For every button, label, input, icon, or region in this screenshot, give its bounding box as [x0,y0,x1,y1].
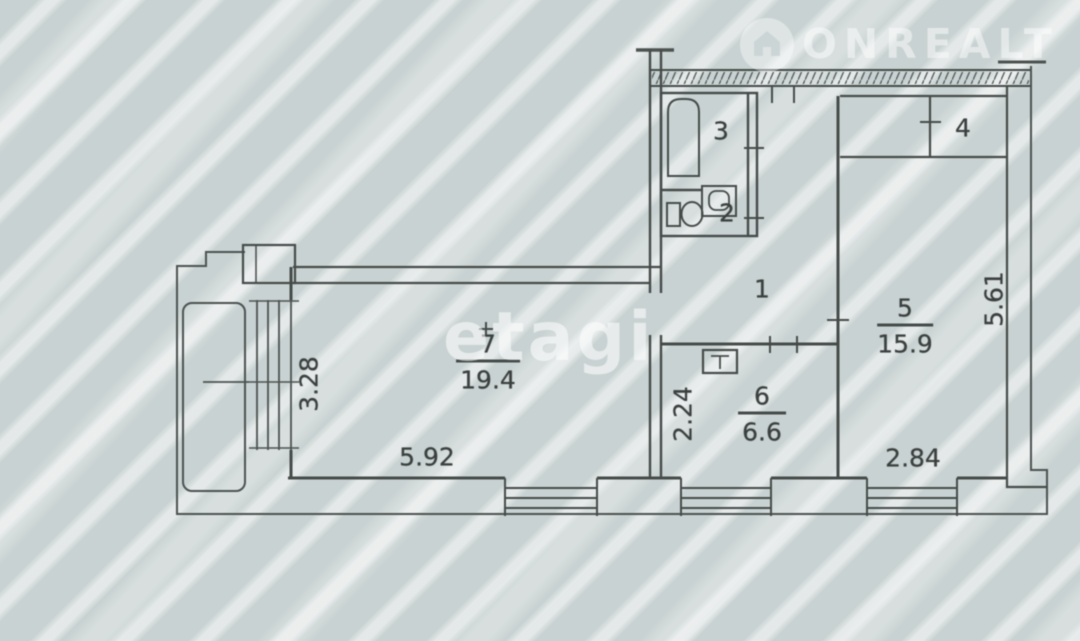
dim-kitchen-width: 2.24 [669,386,698,442]
toilet-icon [667,202,703,226]
room-6-number: 6 [738,382,786,415]
room-5-label: 5 15.9 [877,294,933,359]
dim-living-room-width: 5.92 [399,443,455,472]
balcony-slab [183,303,245,491]
room-5-area: 15.9 [877,327,933,359]
room-1-number: 1 [754,275,770,304]
room-6-label: 6 6.6 [738,382,786,447]
floor-plan: 3 2 4 1 5 15.9 6 6.6 7 19.4 5.92 2.84 3.… [0,0,1080,641]
bedroom-window [867,478,957,516]
balcony [183,300,299,491]
bathroom-block [661,93,764,236]
closet-walls [840,96,1007,157]
room-2-number: 2 [719,199,735,228]
dim-bedroom-width: 2.84 [885,444,941,473]
kitchen-walls [662,336,838,353]
floor-plan-photo: 3 2 4 1 5 15.9 6 6.6 7 19.4 5.92 2.84 3.… [0,0,1080,641]
onrealt-watermark: ONREALT [802,20,1059,68]
room-4-number: 4 [955,114,971,143]
room-5-number: 5 [877,294,933,327]
vent-shaft [243,245,295,283]
bathtub-icon [668,99,699,176]
top-wall [650,50,1030,478]
etagi-watermark: etagi [443,298,655,377]
kitchen-window [681,478,771,516]
room-6-area: 6.6 [738,415,786,447]
kitchen-sink-icon [703,350,737,373]
dim-bedroom-depth: 5.61 [980,271,1009,327]
onrealt-house-icon [738,16,796,74]
living-room-window [505,478,597,516]
room-3-number: 3 [713,117,729,146]
balcony-window [257,300,291,450]
bedroom-walls [827,86,1047,487]
dim-balcony-depth: 3.28 [295,356,324,412]
